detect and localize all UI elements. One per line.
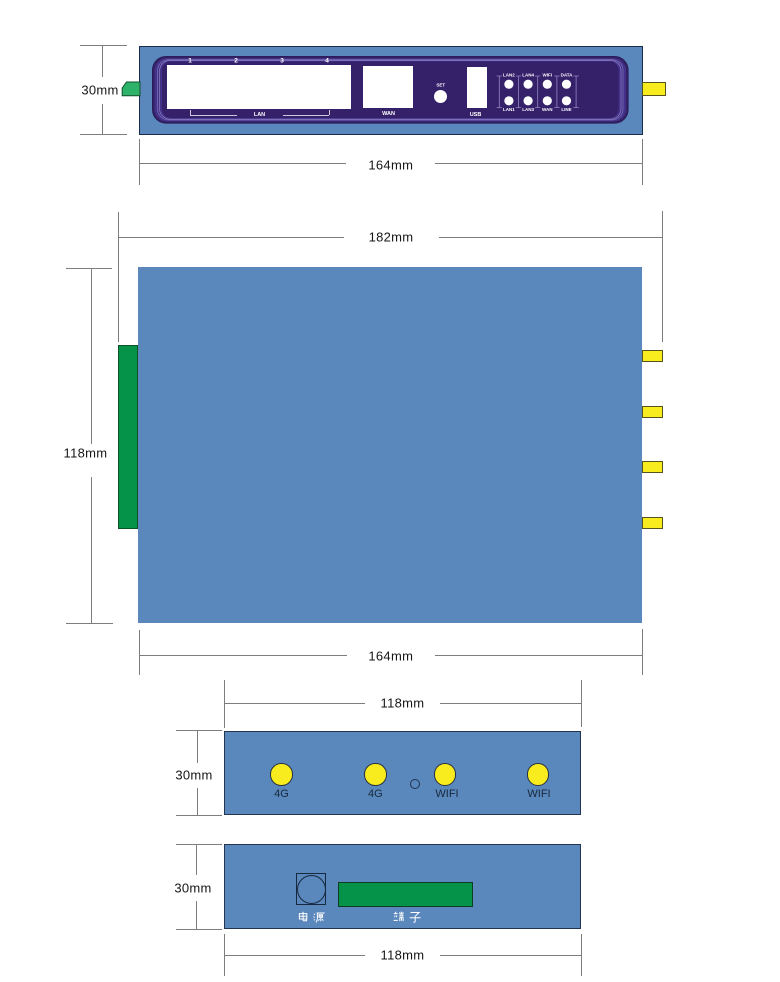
svg-text:LAN3: LAN3 [522, 107, 534, 112]
svg-text:DATA: DATA [561, 73, 574, 78]
svg-text:LINE: LINE [561, 107, 571, 112]
svg-text:LAN4: LAN4 [522, 73, 534, 78]
svg-text:WIFI: WIFI [543, 73, 553, 78]
svg-text:LAN1: LAN1 [503, 107, 515, 112]
svg-text:WAN: WAN [542, 107, 553, 112]
svg-text:LAN2: LAN2 [503, 73, 515, 78]
